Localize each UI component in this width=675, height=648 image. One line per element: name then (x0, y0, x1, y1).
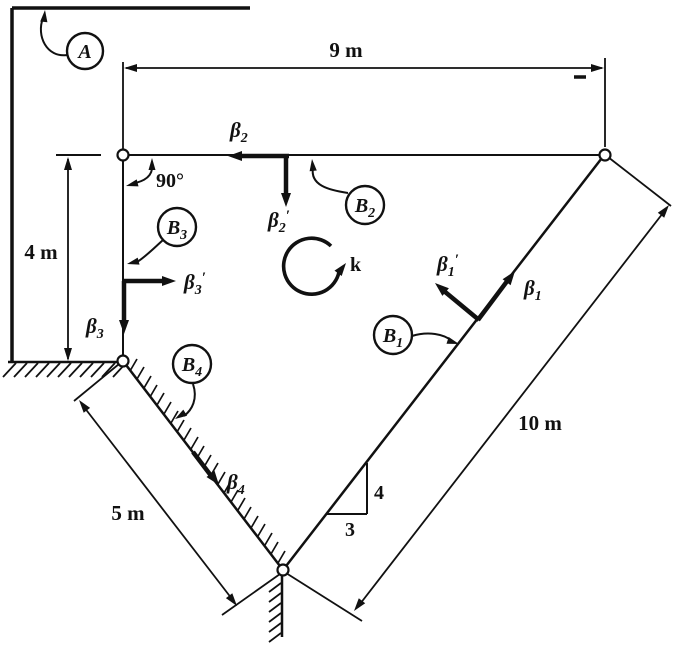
beta2p-label: β2′ (267, 208, 290, 236)
dimension-10m-label: 10 m (518, 411, 562, 435)
slope-run-label: 3 (345, 519, 355, 541)
ground-hatching (3, 363, 126, 377)
arrowhead-up-icon (64, 157, 72, 170)
leader-B2-arrowhead-icon (310, 159, 317, 171)
pin-top-left (118, 150, 129, 161)
body-A-label: A (76, 41, 91, 63)
pin-bottom-left (118, 356, 129, 367)
leader-B3-arrowhead-icon (127, 258, 140, 265)
dimension-5m: 5 m (74, 364, 280, 615)
beta1p-label: β1′ (436, 252, 459, 280)
unit-vector-beta1-prime: β1′ (435, 252, 479, 320)
arrowhead-down-icon (64, 348, 72, 361)
leader-B4 (184, 384, 195, 416)
rotation-arrow-arc (284, 238, 339, 294)
dimension-9m-label: 9 m (329, 38, 363, 62)
arc-arrowhead-up-icon (149, 158, 156, 170)
angle-90-label: 90° (156, 170, 184, 192)
dimension-9m: 9 m (123, 38, 605, 149)
leader-B3 (137, 240, 163, 262)
unit-vector-beta1: β1 (478, 271, 542, 320)
pin-bottom-center (278, 565, 289, 576)
beta1-label: β1 (523, 276, 542, 304)
unit-vector-beta4: β4 (193, 452, 245, 498)
dimension-line (84, 407, 232, 599)
dimension-10m: 10 m (286, 157, 671, 621)
body-balloon-A: A (40, 10, 103, 69)
body-balloon-B4: B4 (173, 345, 211, 419)
beta3-label: β3 (85, 314, 104, 342)
unit-vector-beta2: β2 (228, 118, 289, 161)
leader-B2 (313, 168, 348, 193)
beta2-arrowhead-icon (228, 151, 242, 161)
leader-A (41, 18, 67, 55)
leader-B1 (412, 334, 452, 341)
body-balloon-B1: B1 (374, 316, 459, 354)
arrowhead-downright-icon (226, 593, 237, 606)
beta1p-shaft (444, 291, 479, 320)
body-balloon-B2: B2 (310, 159, 384, 224)
beta4-shaft (193, 452, 212, 477)
arc-arrowhead-down-icon (126, 179, 139, 186)
beta3p-label: β3′ (183, 270, 206, 298)
dimension-4m-label: 4 m (24, 240, 58, 264)
extension-tick-bottom (286, 573, 362, 621)
dimension-line (360, 213, 663, 604)
unit-vector-beta3-prime: β3′ (123, 270, 206, 298)
arrowhead-upleft-icon (79, 400, 90, 413)
body-balloon-B3: B3 (127, 208, 196, 265)
beta2p-arrowhead-icon (281, 193, 291, 207)
extension-tick-top (74, 364, 119, 401)
ground-support-left (3, 362, 127, 377)
slope-rise-label: 4 (374, 482, 384, 504)
mechanics-frame-diagram: 9 m 4 m 5 m 10 m 4 3 90° (0, 0, 675, 648)
beta1-shaft (478, 280, 508, 320)
pin-top-right (600, 150, 611, 161)
arrowhead-left-icon (124, 64, 137, 72)
arrowhead-upright-icon (658, 205, 669, 218)
member-incline-right (283, 154, 605, 570)
rotation-k-symbol: k (284, 238, 362, 294)
k-label: k (350, 254, 362, 276)
support-hatching (269, 583, 281, 642)
beta2-label: β2 (229, 118, 248, 146)
unit-vector-beta2-prime: β2′ (267, 157, 291, 236)
leader-A-arrowhead-icon (40, 10, 47, 22)
beta4-label: β4 (226, 470, 245, 498)
bottom-pin-support (269, 572, 282, 642)
incline-wall-hatching (130, 359, 285, 563)
angle-90-marker: 90° (126, 158, 184, 192)
beta3-arrowhead-icon (119, 320, 129, 334)
rotation-arrowhead-icon (335, 263, 347, 276)
arrowhead-right-icon (591, 64, 604, 72)
figure-canvas: 9 m 4 m 5 m 10 m 4 3 90° (0, 0, 675, 648)
leader-B1-arrowhead-icon (447, 337, 460, 344)
dimension-5m-label: 5 m (111, 501, 145, 525)
extension-tick-top (608, 157, 671, 206)
beta3p-arrowhead-icon (162, 276, 176, 286)
